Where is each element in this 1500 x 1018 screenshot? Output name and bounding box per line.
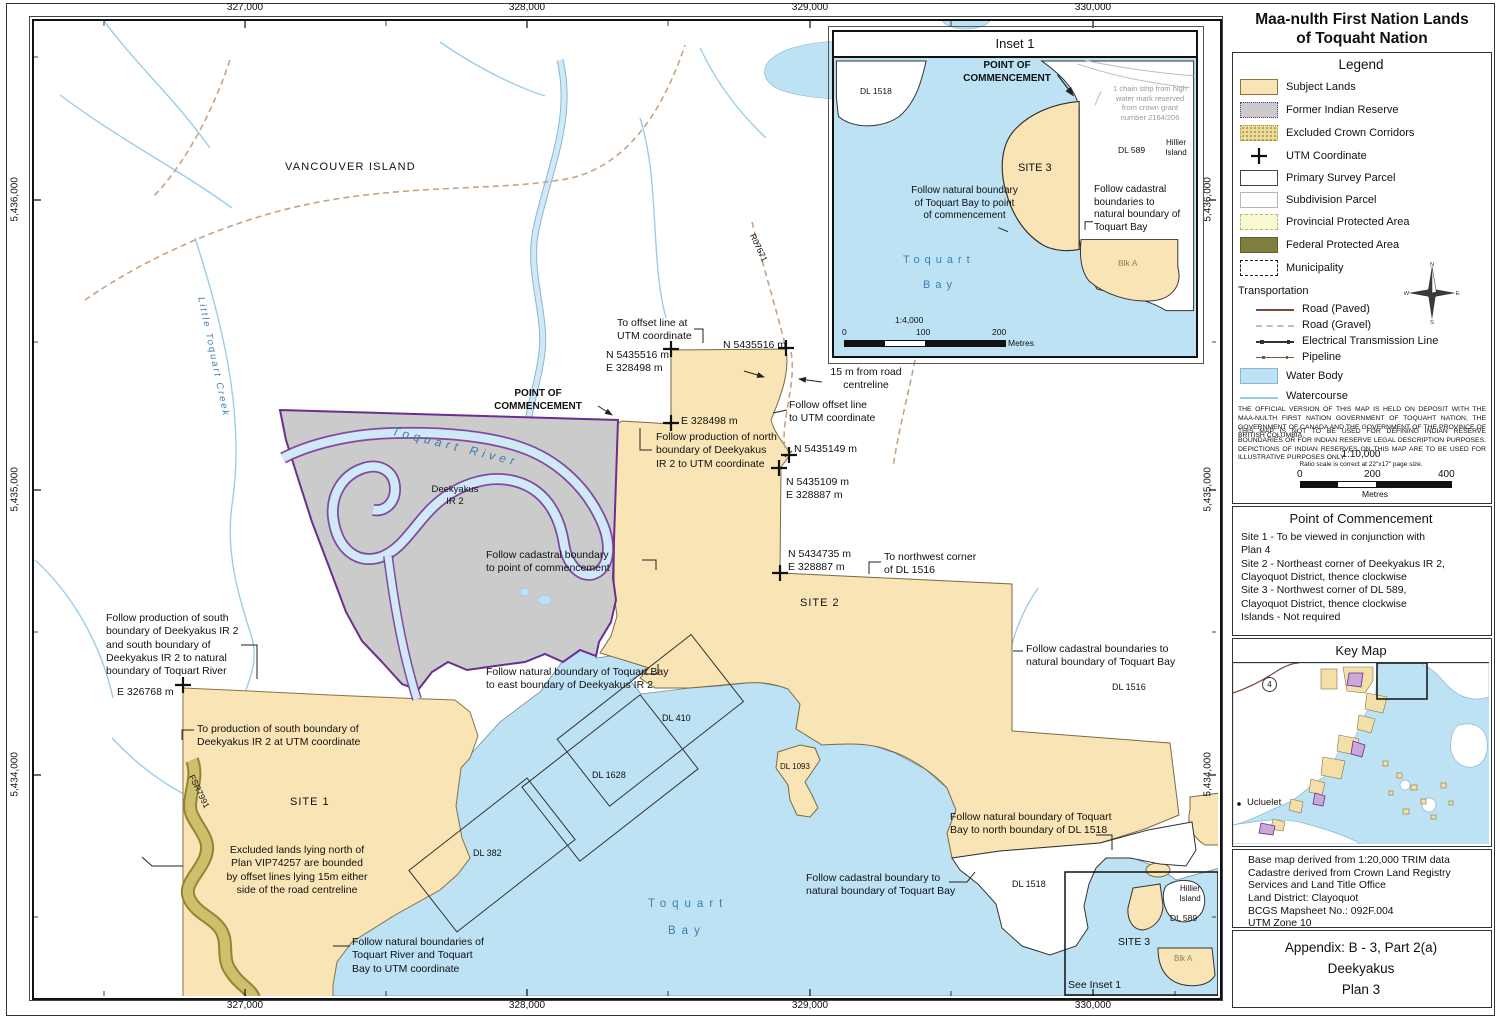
toquart-bay-label-2: Bay bbox=[668, 924, 706, 939]
follow-cadastral-poc-label: Follow cadastral boundary to point of co… bbox=[486, 549, 610, 576]
legend-title: Legend bbox=[1232, 56, 1490, 73]
compass-w: W bbox=[1404, 291, 1410, 297]
pipeline-icon bbox=[1256, 357, 1294, 358]
legend-item-subdivision-parcel: Subdivision Parcel bbox=[1286, 194, 1377, 206]
follow-natural-east-label: Follow natural boundary of Toquart Bay t… bbox=[486, 666, 669, 693]
inset-site3-label: SITE 3 bbox=[1018, 162, 1052, 176]
water-body-swatch bbox=[1240, 368, 1278, 384]
e328498-label: E 328498 m bbox=[681, 415, 738, 428]
excluded-corridors-swatch bbox=[1240, 125, 1278, 141]
inset-dl589-label: DL 589 bbox=[1118, 145, 1145, 156]
legend-scale-ratio: 1:10,000 bbox=[1232, 449, 1490, 462]
legend-item-provincial-protected-area: Provincial Protected Area bbox=[1286, 216, 1410, 228]
n5435516-e-label: N 5435516 m bbox=[723, 339, 786, 352]
follow-cad-nat-label: Follow cadastral boundary to natural bou… bbox=[806, 872, 955, 899]
n5435149-label: N 5435149 m bbox=[794, 443, 857, 456]
n5435109-label: N 5435109 m E 328887 m bbox=[786, 476, 849, 503]
grid-top-1: 328,000 bbox=[497, 2, 557, 15]
road-15m-label: 15 m from road centreline bbox=[816, 366, 916, 393]
inset-site3-parcel bbox=[1002, 101, 1079, 250]
legend-item-federal-protected-area: Federal Protected Area bbox=[1286, 239, 1399, 251]
legend-item-road-gravel: Road (Gravel) bbox=[1302, 319, 1371, 331]
legend-item-excluded-crown-corridors: Excluded Crown Corridors bbox=[1286, 127, 1414, 139]
excluded-lands-label: Excluded lands lying north of Plan VIP74… bbox=[181, 844, 413, 897]
follow-cad-1516-label: Follow cadastral boundaries to natural b… bbox=[1026, 643, 1175, 670]
dl1628-label: DL 1628 bbox=[592, 770, 626, 781]
grid-right-0: 5,436,000 bbox=[1203, 169, 1216, 229]
deekyakus-ir2-label: Deekyakus IR 2 bbox=[415, 484, 495, 508]
legend-item-electrical-transmission-line: Electrical Transmission Line bbox=[1302, 335, 1438, 347]
road-paved-icon bbox=[1256, 309, 1294, 311]
grid-right-1: 5,435,000 bbox=[1203, 459, 1216, 519]
inset-header: Inset 1 bbox=[834, 32, 1196, 58]
grid-bottom-2: 329,000 bbox=[780, 1000, 840, 1013]
legend-item-utm-coordinate: UTM Coordinate bbox=[1286, 150, 1367, 162]
legend-item-watercourse: Watercourse bbox=[1286, 390, 1348, 402]
dl410-label: DL 410 bbox=[662, 713, 691, 724]
e326768-label: E 326768 m bbox=[117, 686, 174, 699]
inset-bay-label: Bay bbox=[923, 279, 957, 293]
inset-poc-label: POINT OF COMMENCEMENT bbox=[946, 60, 1068, 85]
keymap-title: Key Map bbox=[1232, 643, 1490, 660]
legend-scale-bar bbox=[1300, 481, 1452, 488]
legend-scale-400: 400 bbox=[1438, 469, 1455, 482]
keymap-ucluelet-label: Ucluelet bbox=[1247, 797, 1281, 809]
inset-chain-strip-label: 1 chain strip from high water mark reser… bbox=[1104, 84, 1196, 122]
legend-scale-note: Ratio scale is correct at 22"x17" page s… bbox=[1232, 461, 1490, 469]
inset-scale-100: 100 bbox=[916, 327, 930, 338]
federal-protected-swatch bbox=[1240, 237, 1278, 253]
keymap-highway-shield: 4 bbox=[1262, 677, 1277, 692]
follow-prod-north-label: Follow production of north boundary of D… bbox=[656, 431, 777, 471]
compass-rose: N E S W bbox=[1404, 262, 1460, 324]
dl382-label: DL 382 bbox=[473, 848, 502, 859]
to-nw-corner-label: To northwest corner of DL 1516 bbox=[884, 551, 976, 578]
legend-transportation-heading: Transportation bbox=[1238, 285, 1309, 297]
grid-top-0: 327,000 bbox=[215, 2, 275, 15]
inset-scale-ratio: 1:4,000 bbox=[895, 315, 923, 326]
grid-right-2: 5,434,000 bbox=[1203, 744, 1216, 804]
compass-e: E bbox=[1456, 291, 1460, 297]
dl1516-label: DL 1516 bbox=[1112, 682, 1146, 693]
inset-blka-label: Blk A bbox=[1118, 258, 1137, 269]
electrical-line-icon bbox=[1256, 341, 1294, 343]
legend-scale-unit: Metres bbox=[1300, 489, 1450, 500]
inset-follow-cadastral-label: Follow cadastral boundaries to natural b… bbox=[1094, 184, 1180, 235]
legend-scale-200: 200 bbox=[1364, 469, 1381, 482]
inset-follow-natural-label: Follow natural boundary of Toquart Bay t… bbox=[882, 185, 1047, 223]
legend-item-primary-survey-parcel: Primary Survey Parcel bbox=[1286, 172, 1395, 184]
grid-bottom-1: 328,000 bbox=[497, 1000, 557, 1013]
inset-scale-bar bbox=[844, 340, 1006, 347]
poc-body: Site 1 - To be viewed in conjunction wit… bbox=[1241, 531, 1485, 624]
inset-scale-0: 0 bbox=[842, 327, 847, 338]
grid-bottom-3: 330,000 bbox=[1063, 1000, 1123, 1013]
poc-title: Point of Commencement bbox=[1232, 511, 1490, 528]
to-prod-south-label: To production of south boundary of Deeky… bbox=[197, 723, 360, 750]
legend-item-water-body: Water Body bbox=[1286, 370, 1343, 382]
n5435516-w-label: N 5435516 m E 328498 m bbox=[606, 349, 669, 376]
n5434735-label: N 5434735 m E 328887 m bbox=[788, 548, 851, 575]
follow-prod-south-label: Follow production of south boundary of D… bbox=[106, 612, 239, 679]
subdivision-parcel-swatch bbox=[1240, 192, 1278, 208]
dl1518-label: DL 1518 bbox=[1012, 879, 1046, 890]
inset-scale-200: 200 bbox=[992, 327, 1006, 338]
poc-label: POINT OF COMMENCEMENT bbox=[478, 388, 598, 413]
dl1093-label: DL 1093 bbox=[780, 762, 810, 772]
municipality-swatch bbox=[1240, 260, 1278, 276]
inset-box: Inset 1 POINT OF COMMENCEMENT DL 1518 1 … bbox=[832, 30, 1198, 358]
primary-survey-parcel-swatch bbox=[1240, 170, 1278, 186]
inset-title: Inset 1 bbox=[834, 36, 1196, 53]
hillier-label: Hillier Island bbox=[1170, 884, 1210, 904]
appendix-title: Appendix: B - 3, Part 2(a) Deekyakus Pla… bbox=[1232, 938, 1490, 1001]
site2-label: SITE 2 bbox=[800, 597, 840, 611]
subject-lands-swatch bbox=[1240, 79, 1278, 95]
to-offset-line-label: To offset line at UTM coordinate bbox=[617, 317, 692, 344]
basemap-notes: Base map derived from 1:20,000 TRIM data… bbox=[1248, 855, 1483, 931]
inset-scale-unit: Metres bbox=[1008, 338, 1034, 349]
inset-dl1518-label: DL 1518 bbox=[860, 86, 892, 97]
sheet-title: Maa-nulth First Nation Lands of Toquaht … bbox=[1232, 10, 1492, 49]
legend-item-municipality: Municipality bbox=[1286, 262, 1343, 274]
grid-top-2: 329,000 bbox=[780, 2, 840, 15]
legend-scale-0: 0 bbox=[1297, 469, 1303, 482]
grid-top-3: 330,000 bbox=[1063, 2, 1123, 15]
grid-left-2: 5,434,000 bbox=[10, 744, 23, 804]
former-reserve-swatch bbox=[1240, 102, 1278, 118]
vancouver-island-label: VANCOUVER ISLAND bbox=[285, 161, 416, 175]
map-sheet: VANCOUVER ISLAND Little Toquart Creek To… bbox=[0, 0, 1500, 1018]
grid-left-1: 5,435,000 bbox=[10, 459, 23, 519]
grid-left-0: 5,436,000 bbox=[10, 169, 23, 229]
toquart-bay-label-1: Toquart bbox=[648, 897, 728, 912]
follow-offset-line-label: Follow offset line to UTM coordinate bbox=[789, 399, 875, 426]
watercourse-icon bbox=[1240, 397, 1278, 399]
provincial-protected-swatch bbox=[1240, 214, 1278, 230]
legend-item-subject-lands: Subject Lands bbox=[1286, 81, 1356, 93]
dl589-label: DL 589 bbox=[1170, 913, 1197, 924]
inset-toquart-label: Toquart bbox=[903, 254, 975, 268]
blk-a-label: Blk A bbox=[1174, 954, 1192, 964]
compass-n: N bbox=[1430, 262, 1434, 268]
follow-natural-utm-label: Follow natural boundaries of Toquart Riv… bbox=[352, 936, 484, 976]
road-gravel-icon bbox=[1256, 325, 1294, 327]
grid-bottom-0: 327,000 bbox=[215, 1000, 275, 1013]
compass-s: S bbox=[1430, 320, 1434, 324]
follow-nat-1518-label: Follow natural boundary of Toquart Bay t… bbox=[950, 811, 1112, 838]
site3-label: SITE 3 bbox=[1118, 936, 1150, 949]
inset-hillier-label: Hillier Island bbox=[1158, 138, 1194, 158]
inset-blka-parcel bbox=[1080, 240, 1179, 301]
utm-coordinate-icon bbox=[1249, 146, 1269, 166]
site1-label: SITE 1 bbox=[290, 796, 330, 810]
legend-item-road-paved: Road (Paved) bbox=[1302, 303, 1370, 315]
legend-item-pipeline: Pipeline bbox=[1302, 351, 1341, 363]
legend-item-former-indian-reserve: Former Indian Reserve bbox=[1286, 104, 1399, 116]
see-inset-label: See Inset 1 bbox=[1068, 979, 1121, 992]
